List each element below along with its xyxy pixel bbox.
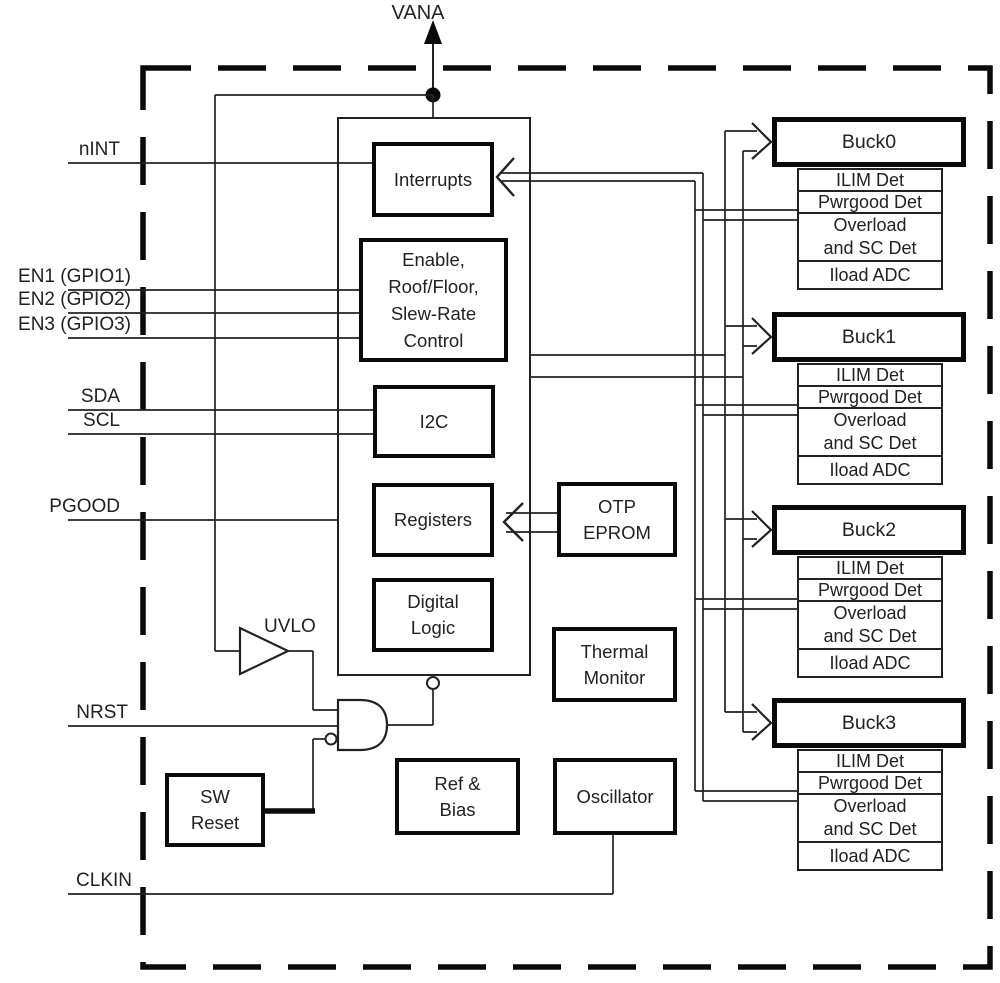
block-oscillator-label: Oscillator <box>576 784 653 810</box>
buck2-title: Buck2 <box>842 519 896 542</box>
buck1-iload-adc: Iload ADC <box>799 455 941 483</box>
uvlo-comparator <box>240 628 338 710</box>
block-interrupts: Interrupts <box>372 142 494 217</box>
block-registers: Registers <box>372 483 494 557</box>
block-i2c-label: I2C <box>420 409 449 435</box>
block-sw-reset: SW Reset <box>165 773 265 847</box>
sw-reset-line-1: SW <box>200 784 230 810</box>
sw-reset-line-2: Reset <box>191 810 239 836</box>
buck-input-arrows <box>725 123 771 740</box>
ref-bias-line-1: Ref & <box>434 771 480 797</box>
buck1-title: Buck1 <box>842 326 896 349</box>
vana-label: VANA <box>378 2 458 25</box>
buck0-overload-sc-det: Overload and SC Det <box>799 212 941 260</box>
block-enable-control: Enable, Roof/Floor, Slew-Rate Control <box>359 238 508 362</box>
block-registers-label: Registers <box>394 507 472 533</box>
block-ref-bias: Ref & Bias <box>395 758 520 835</box>
buck3-title: Buck3 <box>842 712 896 735</box>
pin-en3: EN3 (GPIO3) <box>0 314 131 336</box>
buck3-ilim-det: ILIM Det <box>799 751 941 771</box>
buck0-block: Buck0 <box>772 117 966 167</box>
buck2-pwrgood-det: Pwrgood Det <box>799 578 941 600</box>
pin-en2: EN2 (GPIO2) <box>0 289 131 311</box>
enable-line-2: Roof/Floor, <box>388 273 479 300</box>
buck3-iload-adc: Iload ADC <box>799 841 941 869</box>
buck2-overload-label: Overload and SC Det <box>818 602 922 648</box>
core-input-inverter-bubble <box>427 677 439 689</box>
digital-logic-line-2: Logic <box>411 615 455 641</box>
pin-en1: EN1 (GPIO1) <box>0 266 131 288</box>
block-digital-logic: Digital Logic <box>372 578 494 652</box>
buck0-ilim-det: ILIM Det <box>799 170 941 190</box>
thermal-line-1: Thermal <box>581 639 649 665</box>
pmic-block-diagram: VANA UVLO nINT EN1 (GPIO1) EN2 (GPIO2) E… <box>0 0 1000 983</box>
buck3-overload-label: Overload and SC Det <box>818 795 922 841</box>
gate-input-inverter-bubble <box>326 734 337 745</box>
pin-scl: SCL <box>0 410 120 432</box>
buck1-pwrgood-det: Pwrgood Det <box>799 385 941 407</box>
thermal-line-2: Monitor <box>584 665 646 691</box>
interrupt-bus <box>497 158 703 801</box>
enable-line-3: Slew-Rate <box>391 300 476 327</box>
buck1-overload-sc-det: Overload and SC Det <box>799 407 941 455</box>
buck2-ilim-det: ILIM Det <box>799 558 941 578</box>
buck1-detectors: ILIM Det Pwrgood Det Overload and SC Det… <box>797 363 943 485</box>
block-i2c: I2C <box>373 385 495 458</box>
uvlo-label: UVLO <box>264 616 316 638</box>
buck0-iload-adc: Iload ADC <box>799 260 941 288</box>
pin-wires <box>68 163 613 894</box>
buck2-overload-sc-det: Overload and SC Det <box>799 600 941 648</box>
buck0-overload-label: Overload and SC Det <box>818 214 922 260</box>
buck2-block: Buck2 <box>772 505 966 555</box>
buck2-iload-adc: Iload ADC <box>799 648 941 676</box>
buck1-overload-label: Overload and SC Det <box>818 409 922 455</box>
otp-line-1: OTP <box>598 494 636 520</box>
registers-arrowhead <box>504 503 523 541</box>
block-otp-eprom: OTP EPROM <box>557 482 677 557</box>
block-interrupts-label: Interrupts <box>394 167 472 193</box>
digital-logic-line-1: Digital <box>407 589 458 615</box>
buck3-pwrgood-det: Pwrgood Det <box>799 771 941 793</box>
buck3-overload-sc-det: Overload and SC Det <box>799 793 941 841</box>
buck0-title: Buck0 <box>842 131 896 154</box>
ref-bias-line-2: Bias <box>440 797 476 823</box>
pin-pgood: PGOOD <box>0 496 120 518</box>
enable-line-1: Enable, <box>402 246 465 273</box>
pin-nint: nINT <box>0 139 120 161</box>
buck0-pwrgood-det: Pwrgood Det <box>799 190 941 212</box>
enable-line-4: Control <box>404 327 464 354</box>
pin-nrst: NRST <box>0 702 128 724</box>
pin-sda: SDA <box>0 386 120 408</box>
buck3-block: Buck3 <box>772 698 966 748</box>
buck2-detectors: ILIM Det Pwrgood Det Overload and SC Det… <box>797 556 943 678</box>
buck1-block: Buck1 <box>772 312 966 362</box>
buck1-ilim-det: ILIM Det <box>799 365 941 385</box>
pin-clkin: CLKIN <box>0 870 132 892</box>
interrupts-arrowhead <box>497 158 514 196</box>
and-gate-body <box>338 700 387 750</box>
otp-line-2: EPROM <box>583 520 651 546</box>
block-thermal-monitor: Thermal Monitor <box>552 627 677 702</box>
buck3-detectors: ILIM Det Pwrgood Det Overload and SC Det… <box>797 749 943 871</box>
buck0-detectors: ILIM Det Pwrgood Det Overload and SC Det… <box>797 168 943 290</box>
block-oscillator: Oscillator <box>553 758 677 835</box>
